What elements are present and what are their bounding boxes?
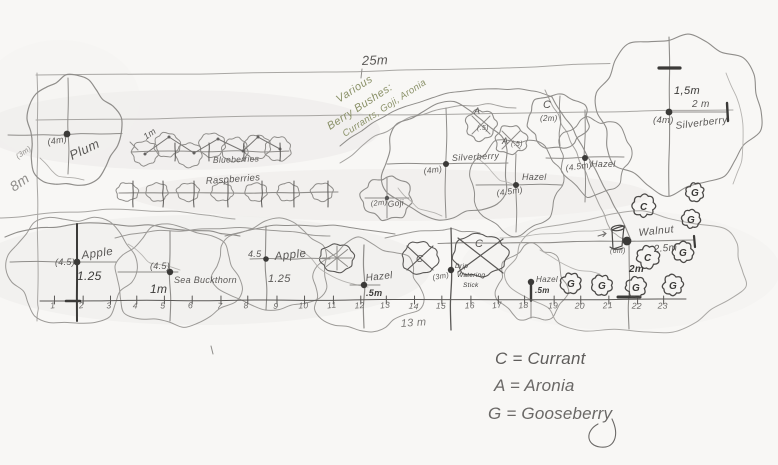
svg-text:G = Gooseberry: G = Gooseberry — [488, 404, 614, 423]
svg-text:.5m: .5m — [366, 288, 382, 298]
svg-text:G: G — [687, 215, 695, 226]
svg-text:12: 12 — [354, 300, 365, 311]
svg-text:Stick: Stick — [463, 282, 479, 289]
svg-text:15: 15 — [436, 301, 446, 311]
svg-text:Goji: Goji — [387, 197, 405, 209]
svg-text:2m: 2m — [628, 264, 644, 275]
svg-text:C: C — [416, 254, 424, 265]
svg-text:A = Aronia: A = Aronia — [493, 376, 575, 395]
svg-text:20: 20 — [574, 300, 585, 310]
svg-text:.5m: .5m — [535, 286, 550, 295]
svg-text:(.5): (.5) — [511, 141, 523, 148]
svg-text:Hazel: Hazel — [522, 172, 547, 182]
svg-text:10: 10 — [298, 300, 308, 310]
svg-text:Blueberries: Blueberries — [213, 153, 260, 165]
svg-text:8: 8 — [243, 300, 249, 310]
svg-text:A: A — [501, 136, 508, 146]
svg-text:G: G — [669, 281, 677, 292]
svg-text:C: C — [543, 99, 551, 111]
svg-text:C: C — [644, 253, 652, 264]
svg-text:13 m: 13 m — [400, 316, 426, 330]
svg-text:14: 14 — [408, 301, 419, 312]
svg-text:2.5m: 2.5m — [652, 242, 677, 255]
svg-text:1m: 1m — [150, 282, 167, 296]
svg-text:A: A — [473, 106, 480, 116]
svg-text:C = Currant: C = Currant — [495, 349, 587, 368]
svg-text:4.5: 4.5 — [248, 249, 262, 259]
svg-text:G: G — [598, 281, 606, 292]
svg-text:G: G — [679, 248, 687, 259]
svg-text:1.25: 1.25 — [77, 269, 102, 283]
svg-text:17: 17 — [491, 299, 502, 310]
svg-text:C: C — [640, 202, 648, 213]
svg-text:13: 13 — [379, 299, 390, 310]
svg-text:16: 16 — [465, 300, 475, 310]
svg-text:23: 23 — [657, 300, 668, 310]
svg-text:19: 19 — [548, 300, 558, 310]
svg-text:G: G — [632, 283, 640, 294]
svg-text:(6m): (6m) — [610, 248, 626, 255]
svg-text:(4m): (4m) — [653, 115, 674, 126]
svg-text:22: 22 — [630, 300, 642, 311]
svg-text:Drip: Drip — [455, 263, 468, 270]
svg-text:1: 1 — [50, 300, 56, 310]
svg-text:3: 3 — [106, 300, 111, 310]
svg-text:G: G — [691, 188, 699, 199]
svg-text:G: G — [567, 279, 575, 290]
svg-text:11: 11 — [326, 299, 337, 310]
svg-text:21: 21 — [601, 300, 613, 311]
svg-text:7: 7 — [217, 301, 223, 311]
svg-text:Sea Buckthorn: Sea Buckthorn — [174, 275, 237, 285]
svg-text:(2m): (2m) — [540, 114, 558, 123]
svg-text:(4.5): (4.5) — [150, 261, 170, 271]
svg-text:(4.5): (4.5) — [55, 257, 75, 267]
svg-text:Hazel: Hazel — [536, 275, 558, 284]
svg-text:2 m: 2 m — [691, 99, 710, 110]
svg-text:4: 4 — [133, 301, 138, 311]
svg-text:Hazel: Hazel — [591, 159, 616, 169]
svg-text:C: C — [475, 238, 483, 250]
svg-text:1,5m: 1,5m — [674, 85, 700, 97]
svg-text:25m: 25m — [361, 52, 389, 68]
svg-text:(2m): (2m) — [370, 197, 388, 208]
svg-text:18: 18 — [518, 300, 529, 311]
svg-text:5: 5 — [160, 300, 165, 310]
svg-text:(.5): (.5) — [477, 125, 489, 132]
svg-text:Watering: Watering — [457, 272, 485, 279]
svg-text:1.25: 1.25 — [268, 273, 291, 285]
